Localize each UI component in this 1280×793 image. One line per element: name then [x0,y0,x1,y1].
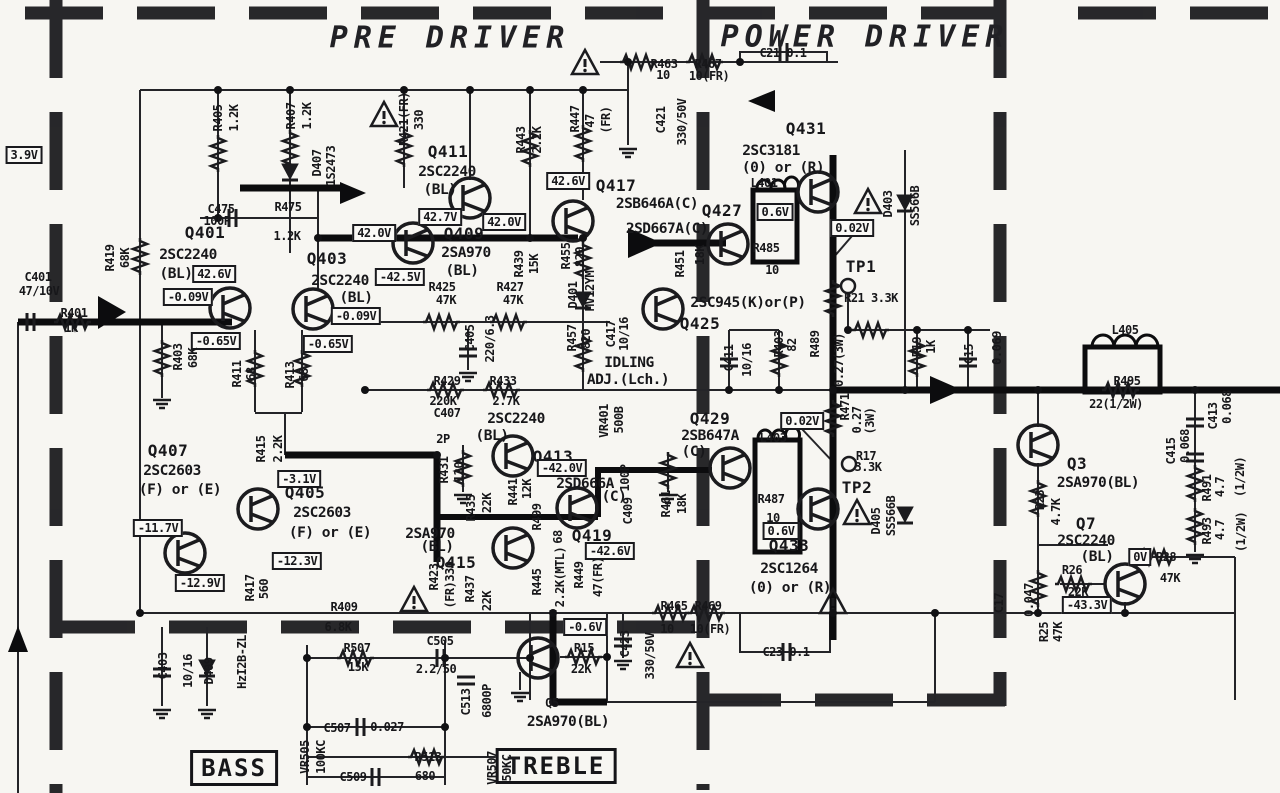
component-label: R447 [569,106,581,133]
component-label: 4.7K [1050,499,1062,526]
component-label: (C) [682,445,707,460]
component-label: 47K [1052,622,1064,642]
component-label: 100KC [315,740,327,774]
component-label: 68 [298,368,310,381]
component-designator: TP1 [846,259,876,275]
component-label: C513 [460,689,472,716]
component-label: C401 [25,271,52,283]
component-label: (BL) [1081,550,1114,565]
label-layer: PRE DRIVER POWER DRIVER BASS TREBLE 3.9V… [0,0,1280,793]
component-label: R491 [1201,475,1213,502]
voltage-badge: -12.3V [272,552,322,570]
component-label: 2SA970(BL) [1057,476,1139,491]
component-label: 2SC1264 [760,562,818,577]
component-label: R409 [331,601,358,613]
component-label: VR505 [299,740,311,774]
component-label: MV12YM [584,271,596,311]
component-label: C415 [1165,438,1177,465]
voltage-badge: -43.3V [1062,596,1112,614]
component-label: 2SC945(K)or(P) [690,296,805,311]
component-label: R421(FR) [398,92,410,146]
component-label: C21 0.1 [759,47,806,59]
component-label: VR401 [598,404,610,438]
component-label: 100P [619,465,631,492]
component-label: 22K [481,493,493,513]
component-label: C423 [619,631,631,658]
component-label: 22K [571,663,591,675]
component-label: 820 [574,247,586,267]
component-label: R499 [531,504,543,531]
component-designator: Q431 [786,121,827,137]
component-label: 500B [613,407,625,434]
component-label: SS566B [885,496,897,536]
component-label: (F) or (E) [289,526,371,541]
component-designator: Q407 [148,443,189,459]
component-label: D407 [311,150,323,177]
component-label: 47 [584,114,596,127]
component-label: 0.27(3W) [833,333,845,387]
component-label: R405 [212,105,224,132]
component-designator: Q427 [702,203,743,219]
bass-section-box: BASS [190,750,278,786]
component-label: 10/16 [741,343,753,377]
component-label: 1.2K [228,105,240,132]
component-label: 2SA970(BL) [527,715,609,730]
component-label: 330/50V [676,98,688,145]
component-label: 2SC2240 [487,412,545,427]
component-label: 2.2K [272,436,284,463]
component-label: HzI2B-ZL [236,635,248,689]
component-label: 2SC2240 [418,165,476,180]
component-label: R493 [1201,518,1213,545]
component-label: R443 [515,127,527,154]
component-label: (BL) [340,291,373,306]
component-label: 10 [660,623,673,635]
component-label: R487 [758,493,785,505]
component-label: 47K [503,294,523,306]
component-label: 22(1/2W) [1089,398,1143,410]
component-designator: TP2 [842,480,872,496]
component-label: 0.069 [991,331,1003,365]
component-label: R465 [661,600,688,612]
component-label: R449 [573,562,585,589]
component-label: 1.2K [274,230,301,242]
component-label: (BL) [424,183,457,198]
component-designator: Q3 [1067,456,1087,472]
component-label: R457 [566,325,578,352]
component-label: 330/50V [644,632,656,679]
component-label: C421 [655,107,667,134]
component-label: R455 [560,243,572,270]
component-label: R445 [531,569,543,596]
voltage-badge: 42.6V [546,172,590,190]
component-label: D401 [567,282,579,309]
component-label: R401 [61,307,88,319]
component-label: (3W) [864,408,876,435]
component-label: 220/6.3 [484,315,496,362]
component-label: 4.7 [1214,477,1226,497]
component-label: R451 [674,251,686,278]
component-label: 47K [1160,572,1180,584]
component-designator: Q405 [285,485,326,501]
component-label: R433 [490,375,517,387]
component-designator: Q411 [428,144,469,160]
component-label: 12K [521,479,533,499]
voltage-badge: -12.9V [175,574,225,592]
component-label: R21 3.3K [844,292,898,304]
component-label: (0) or (R) [749,581,831,596]
component-designator: Q401 [185,225,226,241]
voltage-badge: 3.9V [6,146,43,164]
section-title-pre-driver: PRE DRIVER [330,21,571,56]
component-label: R403 [773,331,785,358]
component-label: (F) or (E) [139,483,221,498]
component-label: 2SC2603 [293,506,351,521]
component-label: R437 [464,576,476,603]
component-label: C409 [622,498,634,525]
voltage-badge: -0.09V [331,307,381,325]
component-label: L401 [751,177,778,189]
component-label: C507 [324,722,351,734]
component-label: R485 [753,242,780,254]
voltage-badge: 0.02V [830,219,874,237]
component-designator: Q7 [1076,516,1096,532]
component-label: 68 [552,530,564,543]
component-label: (FR)330 [444,561,456,608]
component-label: R15 [574,642,594,654]
component-label: 47(FR) [592,557,604,597]
voltage-badge: 0.6V [757,203,794,221]
component-label: 2.2K(MTL) [554,547,566,608]
component-label: 47/10V [19,285,59,297]
component-label: R429 [434,375,461,387]
voltage-badge: -11.7V [133,519,183,537]
component-label: 2SC2603 [143,464,201,479]
component-label: 10/16 [618,317,630,351]
component-label: 1K [64,322,77,334]
component-label: R431 [438,457,450,484]
component-label: R469 [695,600,722,612]
component-label: 3.3K [855,461,882,473]
component-label: (1/2W) [1235,512,1247,552]
component-designator: Q425 [680,316,721,332]
component-label: (BL) [160,267,193,282]
component-label: R413 [284,362,296,389]
component-label: 10 [765,264,778,276]
component-label: SS566B [909,186,921,226]
component-label: 0.068 [1221,390,1233,424]
component-label: R23 [1034,490,1046,510]
voltage-badge: -42.0V [537,459,587,477]
component-label: 2SC2240 [159,248,217,263]
component-label: 2.2/50 [416,663,456,675]
component-label: R439 [513,251,525,278]
component-label: C17 [993,593,1005,613]
component-label: 2SB646A(C) [616,197,698,212]
component-label: 330 [413,110,425,130]
component-label: C403 [157,653,169,680]
component-label: R425 [429,281,456,293]
component-label: 18K [694,245,706,265]
voltage-badge: -42.5V [375,268,425,286]
component-label: (BL) [446,264,479,279]
component-label: 2SC2240 [311,274,369,289]
component-designator: Q429 [690,411,731,427]
component-label: 15K [528,254,540,274]
voltage-badge: -0.6V [563,618,607,636]
component-label: R507 [344,642,371,654]
component-label: R513 [415,751,442,763]
voltage-badge: 42.0V [352,224,396,242]
component-label: C407 [434,407,461,419]
component-label: 120 [453,462,465,482]
component-label: R441 [507,479,519,506]
component-label: 10/16 [182,654,194,688]
component-label: 2SD667A(C) [626,222,708,237]
component-label: 1K [925,340,937,353]
component-label: R461 [660,491,672,518]
voltage-badge: 0V [1128,548,1151,566]
component-label: 68 [245,367,257,380]
voltage-badge: 0.02V [780,412,824,430]
component-label: 2.2K [531,127,543,154]
component-label: 2SC3181 [742,144,800,159]
component-designator: Q409 [444,226,485,242]
component-label: 68K [187,348,199,368]
component-label: 15K [348,661,368,673]
component-label: 0.27 [851,407,863,434]
component-label: 50KC [501,755,513,782]
component-label: C15 [963,344,975,364]
voltage-badge: -0.09V [163,288,213,306]
component-label: IDLING [604,356,653,371]
component-label: R417 [244,575,256,602]
component-label: 2SC2240 [1057,534,1115,549]
component-label: 18K [676,494,688,514]
voltage-badge: 42.0V [482,213,526,231]
component-label: 4.7 [1214,520,1226,540]
component-label: 82 [786,338,798,351]
component-label: 47K [436,294,456,306]
component-label: ADJ.(Lch.) [587,373,669,388]
component-label: 680 [415,770,435,782]
component-label: 1.2K [301,103,313,130]
component-label: R423 [428,564,440,591]
component-label: 0.068 [1179,429,1191,463]
component-label: (0) or (R) [742,161,824,176]
component-label: 6800P [481,684,493,718]
component-label: 0.027 [370,721,404,733]
component-label: C413 [1207,403,1219,430]
component-label: C509 [340,771,367,783]
component-label: R495 [1114,375,1141,387]
component-label: 1S2473 [325,146,337,186]
component-label: 560 [258,579,270,599]
component-label: R403 [172,344,184,371]
component-label: C23 0.1 [762,646,809,658]
component-label: R26 [1062,564,1082,576]
component-label: D403 [882,191,894,218]
component-label: D405 [870,508,882,535]
component-designator: Q403 [307,251,348,267]
component-label: R427 [497,281,524,293]
component-label: R435 [465,495,477,522]
component-label: R475 [275,201,302,213]
component-label: VR507 [486,751,498,785]
component-label: R415 [255,436,267,463]
component-label: 820 [580,329,592,349]
component-designator: Q417 [596,178,637,194]
component-label: C417 [605,321,617,348]
component-label: R411 [231,361,243,388]
component-label: R19 [911,337,923,357]
component-label: R489 [809,331,821,358]
component-label: 2.7K [493,395,520,407]
component-label: R407 [285,103,297,130]
component-label: 2P [436,433,449,445]
component-label: C405 [464,325,476,352]
component-label: 6.8K [325,621,352,633]
component-label: 10(FR) [690,623,730,635]
component-label: 2SA970 [441,246,490,261]
schematic-page: { "titles": { "pre": "PRE DRIVER", "powe… [0,0,1280,793]
component-label: 22K [481,591,493,611]
component-label: 2SB647A [681,429,739,444]
component-label: R28 [1156,551,1176,563]
component-label: L403 [760,432,787,444]
component-label: (BL) [476,429,509,444]
component-label: 10 [656,69,669,81]
voltage-badge: -0.65V [303,335,353,353]
component-label: 10(FR) [689,70,729,82]
component-label: (FR) [600,107,612,134]
component-label: Q5 [545,697,558,709]
component-label: (1/2W) [1234,457,1246,497]
component-label: R419 [104,245,116,272]
component-label: 0.047 [1023,583,1035,617]
component-label: C411 [723,345,735,372]
component-label: L405 [1112,324,1139,336]
component-label: R25 [1038,622,1050,642]
component-label: C505 [427,635,454,647]
component-label: D409 [203,658,215,685]
component-designator: Q433 [769,538,810,554]
component-label: 68K [119,248,131,268]
voltage-badge: 42.6V [192,265,236,283]
